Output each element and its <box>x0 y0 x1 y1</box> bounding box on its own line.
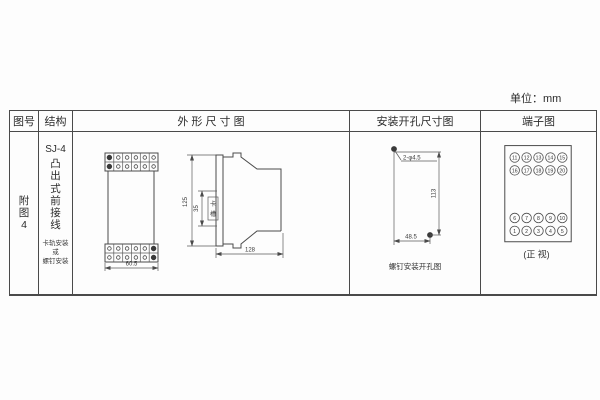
terminal-number: 2 <box>525 229 528 235</box>
type-char: 线 <box>50 219 61 231</box>
terminal-number: 14 <box>548 155 554 161</box>
terminal-number: 16 <box>512 168 518 174</box>
header-figure-no: 图号 <box>10 111 39 131</box>
figure-number-cell: 附 图 4 <box>10 132 39 294</box>
type-char: 前 <box>50 195 61 207</box>
terminal-number: 19 <box>548 168 554 174</box>
dim-vertical-spacing: 113 <box>432 188 438 198</box>
terminal-number: 6 <box>513 216 516 222</box>
mounting-note-line: 卡轨安装 <box>43 239 69 248</box>
mounting-note-line: 螺钉安装 <box>43 257 69 266</box>
terminal-number: 8 <box>537 216 540 222</box>
figure-char: 附 <box>19 195 30 207</box>
outline-side-view: 125 35 卡 槽 128 <box>183 153 283 258</box>
datasheet-page: 单位：mm 图号 结构 外 形 尺 寸 图 安装开孔尺寸图 端子图 附 图 4 … <box>0 0 600 400</box>
dim-front-width: 60.5 <box>126 262 138 268</box>
terminal-number: 3 <box>537 229 540 235</box>
terminal-number: 12 <box>524 155 530 161</box>
mounting-note-line: 或 <box>43 248 69 257</box>
outline-drawing: 60.5 125 35 <box>73 132 349 294</box>
unit-label: 单位：mm <box>510 90 561 106</box>
terminal-caption: (正 视) <box>523 249 549 260</box>
type-char: 出 <box>50 170 61 182</box>
dim-depth: 128 <box>245 248 256 254</box>
outline-drawing-cell: 60.5 125 35 <box>73 132 350 294</box>
mounting-holes: 113 2-φ4.5 48.5 <box>392 147 441 245</box>
mounting-drawing-cell: 113 2-φ4.5 48.5 螺钉安装开孔图 <box>350 132 481 294</box>
holes-label: 2-φ4.5 <box>403 156 421 162</box>
type-char: 式 <box>50 183 61 195</box>
terminal-number: 5 <box>561 229 564 235</box>
structure-cell: SJ-4 凸 出 式 前 接 线 卡轨安装 或 螺钉安装 <box>39 132 73 294</box>
dim-horizontal-spacing: 48.5 <box>405 235 417 241</box>
type-char: 接 <box>50 207 61 219</box>
slot-label-char: 卡 <box>210 200 216 208</box>
terminal-number: 17 <box>524 168 530 174</box>
model-label: SJ-4 <box>45 144 66 155</box>
terminal-number: 18 <box>536 168 542 174</box>
terminal-circles-bottom: 6 7 8 9 10 1 2 3 4 5 <box>510 213 567 235</box>
figure-char: 图 <box>19 207 30 219</box>
header-mounting: 安装开孔尺寸图 <box>350 111 481 131</box>
mounting-note: 卡轨安装 或 螺钉安装 <box>43 239 69 266</box>
terminal-diagram-cell: 11 12 13 14 15 16 17 18 19 20 6 7 <box>481 132 596 294</box>
terminal-number: 7 <box>525 216 528 222</box>
mounting-caption: 螺钉安装开孔图 <box>389 261 442 271</box>
figure-char: 4 <box>21 219 27 231</box>
type-char: 凸 <box>50 158 61 170</box>
dim-height: 125 <box>183 196 189 207</box>
header-outline: 外 形 尺 寸 图 <box>73 111 350 131</box>
outline-front-view: 60.5 <box>105 153 158 271</box>
dim-slot-height: 35 <box>194 205 200 212</box>
terminal-number: 11 <box>512 155 517 161</box>
terminal-number: 1 <box>513 229 516 235</box>
header-structure: 结构 <box>39 111 73 131</box>
spec-table: 图号 结构 外 形 尺 寸 图 安装开孔尺寸图 端子图 附 图 4 SJ-4 凸… <box>9 110 597 296</box>
terminal-number: 10 <box>559 216 565 222</box>
terminal-number: 13 <box>536 155 542 161</box>
terminal-number: 20 <box>559 168 565 174</box>
terminal-diagram: 11 12 13 14 15 16 17 18 19 20 6 7 <box>481 132 596 294</box>
slot-label-char: 槽 <box>210 210 216 218</box>
terminal-circles-top: 11 12 13 14 15 16 17 18 19 20 <box>510 153 567 175</box>
terminal-number: 4 <box>549 229 552 235</box>
mounting-hole-drawing: 113 2-φ4.5 48.5 螺钉安装开孔图 <box>350 132 480 294</box>
table-body-row: 附 图 4 SJ-4 凸 出 式 前 接 线 卡轨安装 或 螺钉安装 <box>10 132 596 294</box>
terminal-number: 9 <box>549 216 552 222</box>
terminal-number: 15 <box>559 155 565 161</box>
header-terminal: 端子图 <box>481 111 596 131</box>
table-header-row: 图号 结构 外 形 尺 寸 图 安装开孔尺寸图 端子图 <box>10 111 596 132</box>
